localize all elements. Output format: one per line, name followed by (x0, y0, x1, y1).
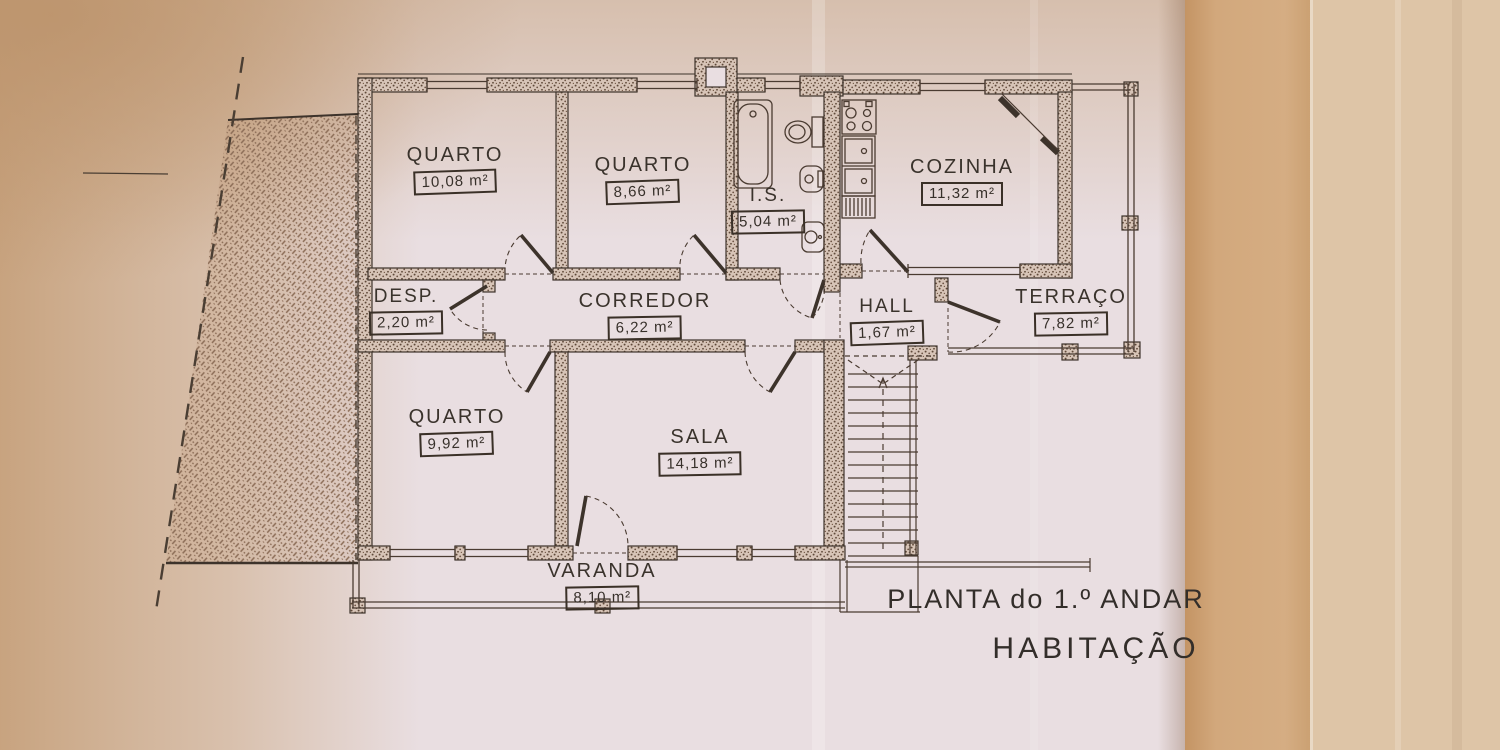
back-page-crease (1395, 0, 1401, 750)
floorplan-photo: QUARTO 10,08 m² QUARTO 8,66 m² I.S. 5,04… (0, 0, 1500, 750)
floorplan-drawing (0, 0, 1500, 750)
paper-edge-shadow (1158, 0, 1185, 750)
paper-crease-center (812, 0, 825, 750)
back-page-shade (1452, 0, 1462, 750)
chimney (695, 58, 737, 96)
paper-crease-right (1030, 0, 1038, 750)
fold-highlight (1310, 0, 1313, 750)
folded-page-band (1185, 0, 1310, 750)
back-page-band (1310, 0, 1500, 750)
